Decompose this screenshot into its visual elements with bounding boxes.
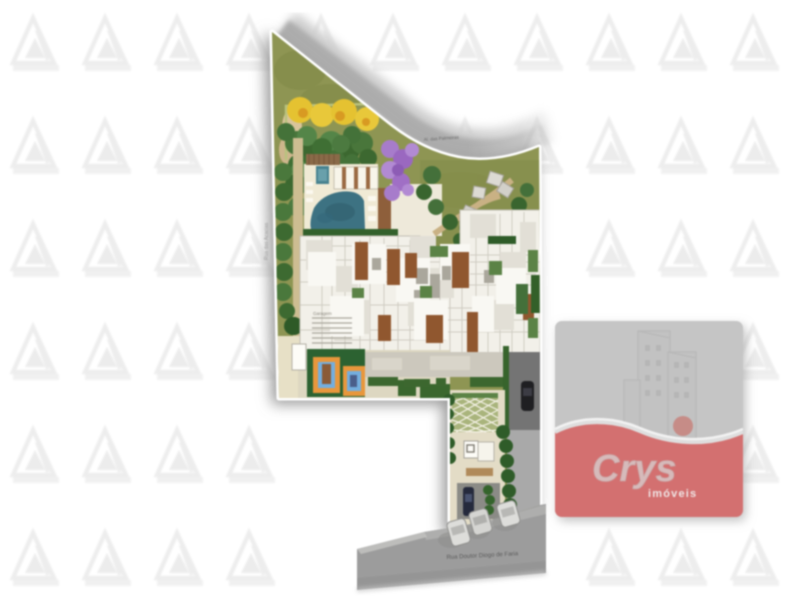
svg-text:Garagem: Garagem	[313, 311, 332, 316]
svg-text:Crys: Crys	[592, 448, 677, 490]
svg-text:Rua das Acacias: Rua das Acacias	[264, 222, 270, 260]
svg-text:imóveis: imóveis	[648, 488, 697, 500]
